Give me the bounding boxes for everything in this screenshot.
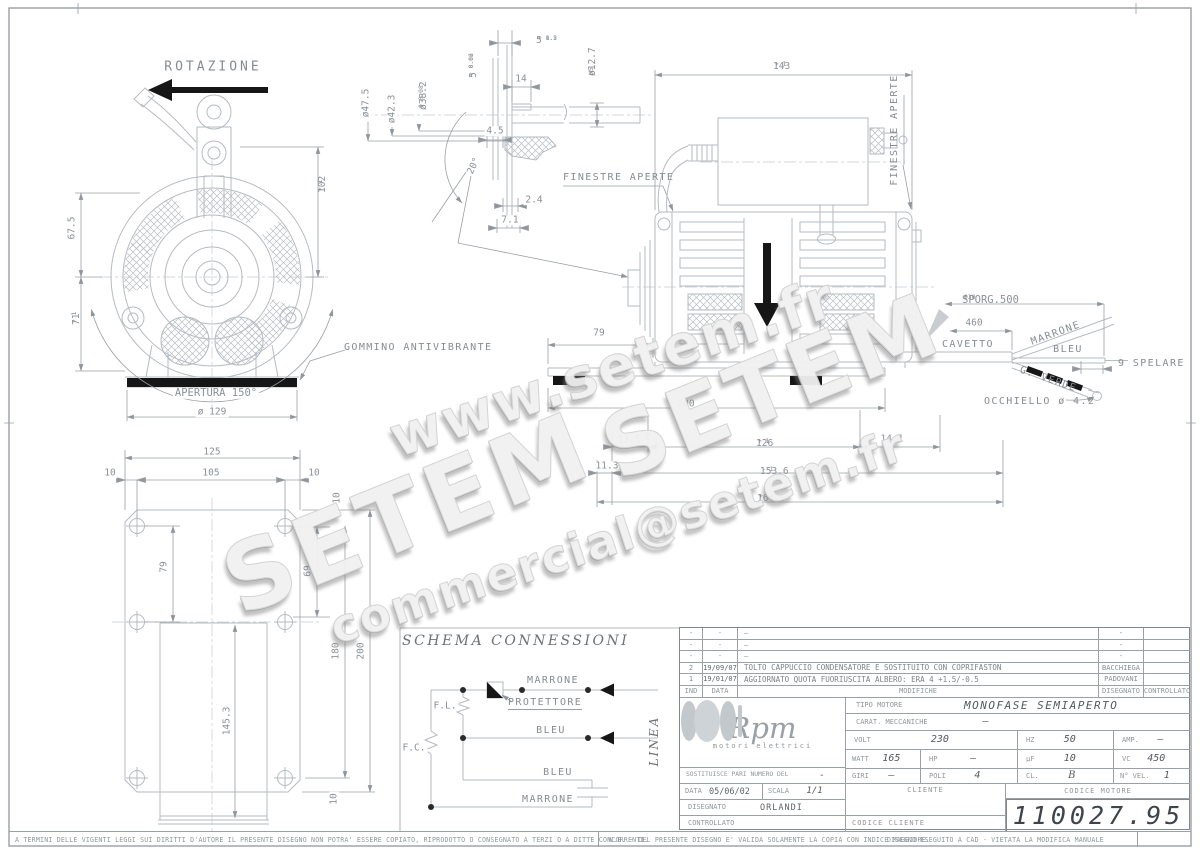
foot-pad-left [553, 376, 585, 385]
rev-header-date: DATA [712, 688, 729, 695]
rev-desc: — [744, 642, 748, 649]
codice-motore-header: CODICE MOTORE [1006, 784, 1190, 799]
rev-header-drawn: DISEGNATO [1102, 688, 1140, 695]
rev-drawn: - [1119, 653, 1123, 660]
brand-tagline: motori elettrici [713, 743, 812, 750]
dim-side-200: 200 [675, 399, 696, 409]
dim-plate-10-left: 10 [102, 468, 117, 478]
cliente-label: CLIENTE [907, 787, 944, 794]
rev-header-checked: CONTROLLATO [1144, 688, 1190, 695]
label-apertura: APERTURA 150° [173, 388, 259, 399]
uf-cell: µF 10 [1018, 750, 1114, 769]
legal-divider [1137, 832, 1138, 847]
rev-header-desc: MODIFICHE [899, 688, 937, 695]
hp-label: HP [929, 756, 937, 763]
schema-title: SCHEMA CONNESSIONI [402, 634, 629, 648]
rev-ind: 2 [689, 665, 693, 672]
label-wire-bleu: BLEU [1053, 345, 1083, 355]
classe-cell: CL. B [1018, 769, 1114, 784]
dim-plate-79: 79 [159, 559, 169, 574]
label-occhiello: OCCHIELLO ø 4.2 [984, 397, 1095, 407]
shaft-detail [360, 30, 673, 277]
rotation-label: ROTAZIONE [164, 61, 261, 74]
schema-bleu-mid: BLEU [536, 726, 566, 736]
drawing-sheet: ROTAZIONE 67.5 71+ 1- 1 102+ 1- 1 APERTU… [0, 0, 1200, 848]
antivibration-pad [127, 378, 297, 387]
codice-cliente-cell: CODICE CLIENTE [846, 816, 1006, 831]
legal-text-left: A TERMINI DELLE VIGENTI LEGGI SUI DIRITT… [15, 836, 649, 844]
dim-plate-125: 125 [201, 447, 222, 457]
amp-cell: AMP. — [1114, 731, 1190, 750]
controllato-cell: CONTROLLATO [680, 816, 846, 831]
hp-cell: HP — [921, 750, 1018, 769]
rev-desc: TOLTO CAPPUCCIO CONDENSATORE E SOSTITUIT… [744, 664, 1001, 672]
rev-date: 19/01/07 [703, 676, 737, 683]
dim-plate-145-3: 145.3 [222, 705, 232, 738]
rev-header-ind: IND [685, 688, 698, 695]
giri-cell: GIRI — [846, 769, 921, 784]
rev-date: 19/09/07 [703, 665, 737, 672]
nvel-value: 1 [1150, 771, 1184, 781]
sostituisce-value: - [788, 771, 839, 781]
dim-shaft-42-3: ø42.3 [387, 93, 397, 126]
rev-drawn: - [1119, 642, 1123, 649]
rev-date: - [718, 630, 722, 637]
dim-shaft-4-5: 4.5 [484, 126, 505, 136]
schema-protettore: PROTETTORE [508, 698, 582, 710]
dim-plate-10-right: 10 [306, 468, 321, 478]
scala-cell: SCALA 1/1 [763, 784, 846, 800]
schema-marrone-top: MARRONE [527, 676, 579, 686]
dim-shaft-14: 14 [513, 74, 528, 84]
poli-value: 4 [946, 771, 1009, 781]
protector-symbol [487, 682, 503, 698]
dim-shaft-47-5: ø47.5 [361, 87, 371, 120]
legal-strip: A TERMINI DELLE VIGENTI LEGGI SUI DIRITT… [9, 831, 1191, 847]
tipo-motore-label: TIPO MOTORE [856, 702, 902, 709]
dim-plate-69: 69 [303, 563, 313, 578]
rpm-logo-icon [680, 698, 744, 744]
dim-plate-10-top: 10 [332, 490, 342, 505]
dim-cable-460: 460 [963, 318, 984, 328]
sostituisce-label: SOSTITUISCE PARI NUMERO DEL [686, 772, 788, 778]
data-label: DATA [685, 788, 702, 795]
poli-cell: POLI 4 [921, 769, 1018, 784]
schema-fl: F.L. [432, 701, 459, 711]
amp-value: — [1139, 735, 1182, 745]
codice-motore-value: 110027.95 [1013, 801, 1184, 830]
title-block: - - — - - - — - - - — - 2 19/09/07 TOLTO… [679, 627, 1190, 830]
rev-desc: AGGIORNATO QUOTA FUORIUSCITA ALBERO: ERA… [744, 676, 979, 684]
classe-label: CL. [1026, 773, 1039, 780]
dim-front-129: ø 129 [196, 407, 229, 417]
dim-plate-105: 105 [200, 468, 221, 478]
label-finestre-left: FINESTRE APERTE [563, 173, 674, 183]
dim-plate-200: 200 [356, 640, 366, 661]
scala-value: 1/1 [789, 787, 840, 796]
dim-shaft-7-1: 7.1 [499, 215, 520, 225]
tipo-motore-cell: TIPO MOTORE MONOFASE SEMIAPERTO [846, 698, 1190, 714]
data-value: 05/06/02 [702, 787, 757, 797]
rev-ind: - [689, 642, 693, 649]
rev-drawn: PADOVANI [1104, 676, 1138, 683]
giri-label: GIRI [852, 773, 869, 780]
scala-label: SCALA [768, 788, 789, 795]
schema-marrone-bot: MARRONE [522, 795, 574, 805]
disegnato-cell: DISEGNATO ORLANDI [680, 800, 846, 816]
dim-plate-180: 180 [331, 640, 341, 661]
tipo-motore-value: MONOFASE SEMIAPERTO [902, 700, 1180, 711]
data-cell: DATA 05/06/02 [680, 784, 763, 800]
label-gommino: GOMMINO ANTIVIBRANTE [344, 343, 492, 353]
vc-value: 450 [1130, 754, 1182, 764]
nvel-label: N° VEL. [1120, 773, 1150, 780]
dim-side-11-3: 11.3 [594, 461, 621, 471]
rotation-arrow-icon [148, 79, 268, 101]
watt-cell: WATT 165 [846, 750, 921, 769]
watt-label: WATT [852, 756, 869, 763]
hp-value: — [937, 754, 1009, 764]
dim-plate-10-bottom: 10 [329, 791, 339, 806]
rev-drawn: BACCHIEGA [1102, 665, 1140, 672]
amp-label: AMP. [1122, 737, 1139, 744]
codice-cliente-label: CODICE CLIENTE [852, 820, 925, 827]
volt-value: 230 [871, 735, 1009, 745]
foot-pad-right [790, 376, 822, 385]
uf-label: µF [1026, 756, 1034, 763]
rev-date: - [718, 653, 722, 660]
rev-drawn: - [1119, 630, 1123, 637]
volt-cell: VOLT 230 [846, 731, 1018, 750]
dim-side-14-1: 14.1 [879, 434, 906, 444]
dim-side-79: 79 [591, 328, 606, 338]
codice-motore-label: CODICE MOTORE [1064, 788, 1132, 795]
poli-label: POLI [929, 773, 946, 780]
carat-value: — [983, 717, 989, 727]
rev-desc: — [744, 630, 748, 637]
codice-motore-cell: 110027.95 [1006, 799, 1190, 831]
carat-cell: CARAT. MECCANICHE — [846, 714, 1190, 731]
disegnato-value: ORLANDI [726, 803, 837, 813]
vc-cell: VC 450 [1114, 750, 1190, 769]
label-spelare: 9 SPELARE [1118, 359, 1185, 369]
watt-value: 165 [869, 754, 914, 764]
brand-cell: Rpm motori elettrici [680, 698, 846, 768]
legal-text-right: DISEGNO ESEGUITO A CAD - VIETATA LA MODI… [887, 836, 1104, 844]
nvel-cell: N° VEL. 1 [1114, 769, 1190, 784]
rev-ind: - [689, 630, 693, 637]
dim-front-67-5: 67.5 [67, 215, 77, 242]
rev-desc: — [744, 653, 748, 660]
dim-shaft-2-4: 2.4 [523, 195, 544, 205]
sostituisce-cell: SOSTITUISCE PARI NUMERO DEL - [680, 768, 846, 784]
cliente-cell: CLIENTE [846, 784, 1006, 816]
legal-text-mid: N.B. - DEL PRESENTE DISEGNO E' VALIDA SO… [609, 836, 930, 844]
label-finestre-right: FINESTRE APERTE [890, 74, 900, 185]
controllato-label: CONTROLLATO [688, 820, 734, 827]
classe-value: B [1039, 771, 1105, 781]
front-view [75, 79, 345, 421]
disegnato-label: DISEGNATO [688, 804, 726, 811]
line-terminal-arrows [600, 684, 614, 745]
carat-label: CARAT. MECCANICHE [856, 719, 928, 726]
schema-fc: F.C. [401, 743, 428, 753]
hz-value: 50 [1034, 735, 1105, 745]
hz-label: HZ [1026, 737, 1034, 744]
volt-label: VOLT [854, 737, 871, 744]
schema-linea: LINEA [648, 716, 660, 767]
dim-side-13-5: 13.5 [616, 435, 643, 445]
giri-value: — [869, 771, 914, 781]
rev-date: - [718, 642, 722, 649]
hz-cell: HZ 50 [1018, 731, 1114, 750]
label-cavetto: CAVETTO [942, 340, 994, 350]
vc-label: VC [1122, 756, 1130, 763]
uf-value: 10 [1034, 754, 1105, 764]
schema-bleu-bot: BLEU [543, 768, 573, 778]
rev-ind: - [689, 653, 693, 660]
cable-detail [893, 304, 1128, 401]
rev-ind: 1 [689, 676, 693, 683]
